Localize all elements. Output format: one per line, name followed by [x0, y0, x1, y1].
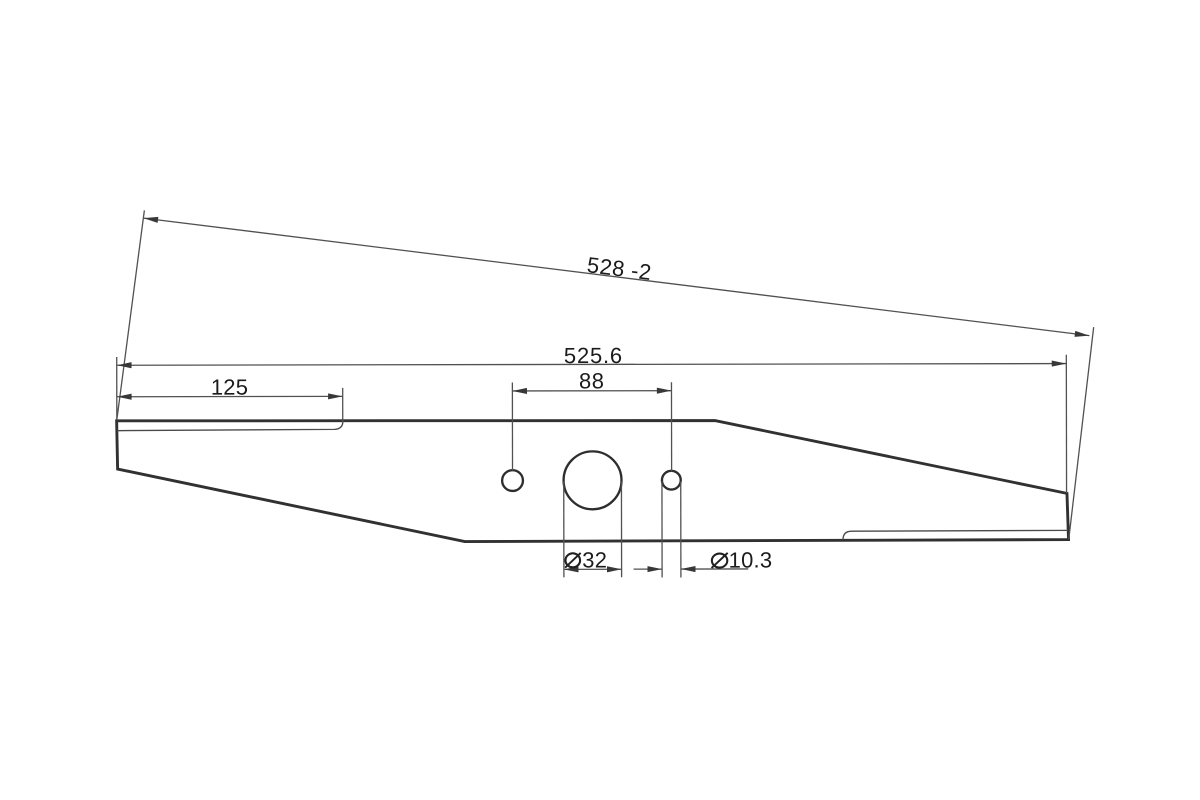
svg-text:10.3: 10.3: [729, 547, 773, 572]
svg-text:525.6: 525.6: [564, 343, 623, 368]
svg-text:125: 125: [211, 375, 248, 400]
svg-text:88: 88: [579, 368, 605, 393]
svg-text:528 -2: 528 -2: [586, 252, 653, 285]
svg-text:32: 32: [582, 547, 607, 572]
